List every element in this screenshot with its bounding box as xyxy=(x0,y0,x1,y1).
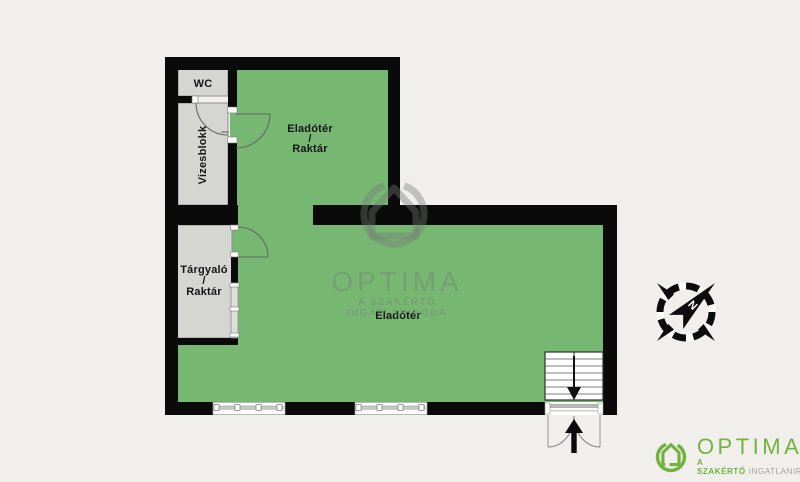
window-right xyxy=(355,403,427,415)
logo-subtitle-rest: INGATLANIRODA xyxy=(749,467,800,476)
room-label-line: Raktár xyxy=(250,144,370,154)
logo-subtitle-accent: A SZAKÉRTŐ xyxy=(697,458,746,476)
logo-subtitle: A SZAKÉRTŐINGATLANIRODA xyxy=(697,458,800,476)
room-label-vizesblokk: Vizesblokk xyxy=(195,105,211,205)
logo-title: OPTIMA xyxy=(697,436,800,457)
staircase xyxy=(545,352,603,400)
logo-text: OPTIMA A SZAKÉRTŐINGATLANIRODA xyxy=(697,436,800,476)
watermark-subtitle: A SZAKÉRTŐ INGATLANIRODA xyxy=(317,297,477,319)
room-label-line: Raktár xyxy=(154,287,254,298)
compass-rose-icon: N xyxy=(654,276,722,344)
room-label-wc: WC xyxy=(178,78,228,90)
floorplan-canvas: N WC Vizesblokk Eladótér / Raktár Tárgya… xyxy=(0,0,800,482)
entrance xyxy=(545,402,603,453)
compass-needle: N xyxy=(669,276,722,329)
floorplan-drawing: N xyxy=(0,0,800,482)
window-left xyxy=(213,403,285,415)
optima-house-logo-icon xyxy=(652,436,690,476)
room-label-targyalo-raktar: Tárgyaló / Raktár xyxy=(154,265,254,298)
watermark-title: OPTIMA xyxy=(322,266,472,298)
optima-logo: OPTIMA A SZAKÉRTŐINGATLANIRODA xyxy=(652,436,800,476)
room-label-eladoter-raktar: Eladótér / Raktár xyxy=(250,124,370,154)
